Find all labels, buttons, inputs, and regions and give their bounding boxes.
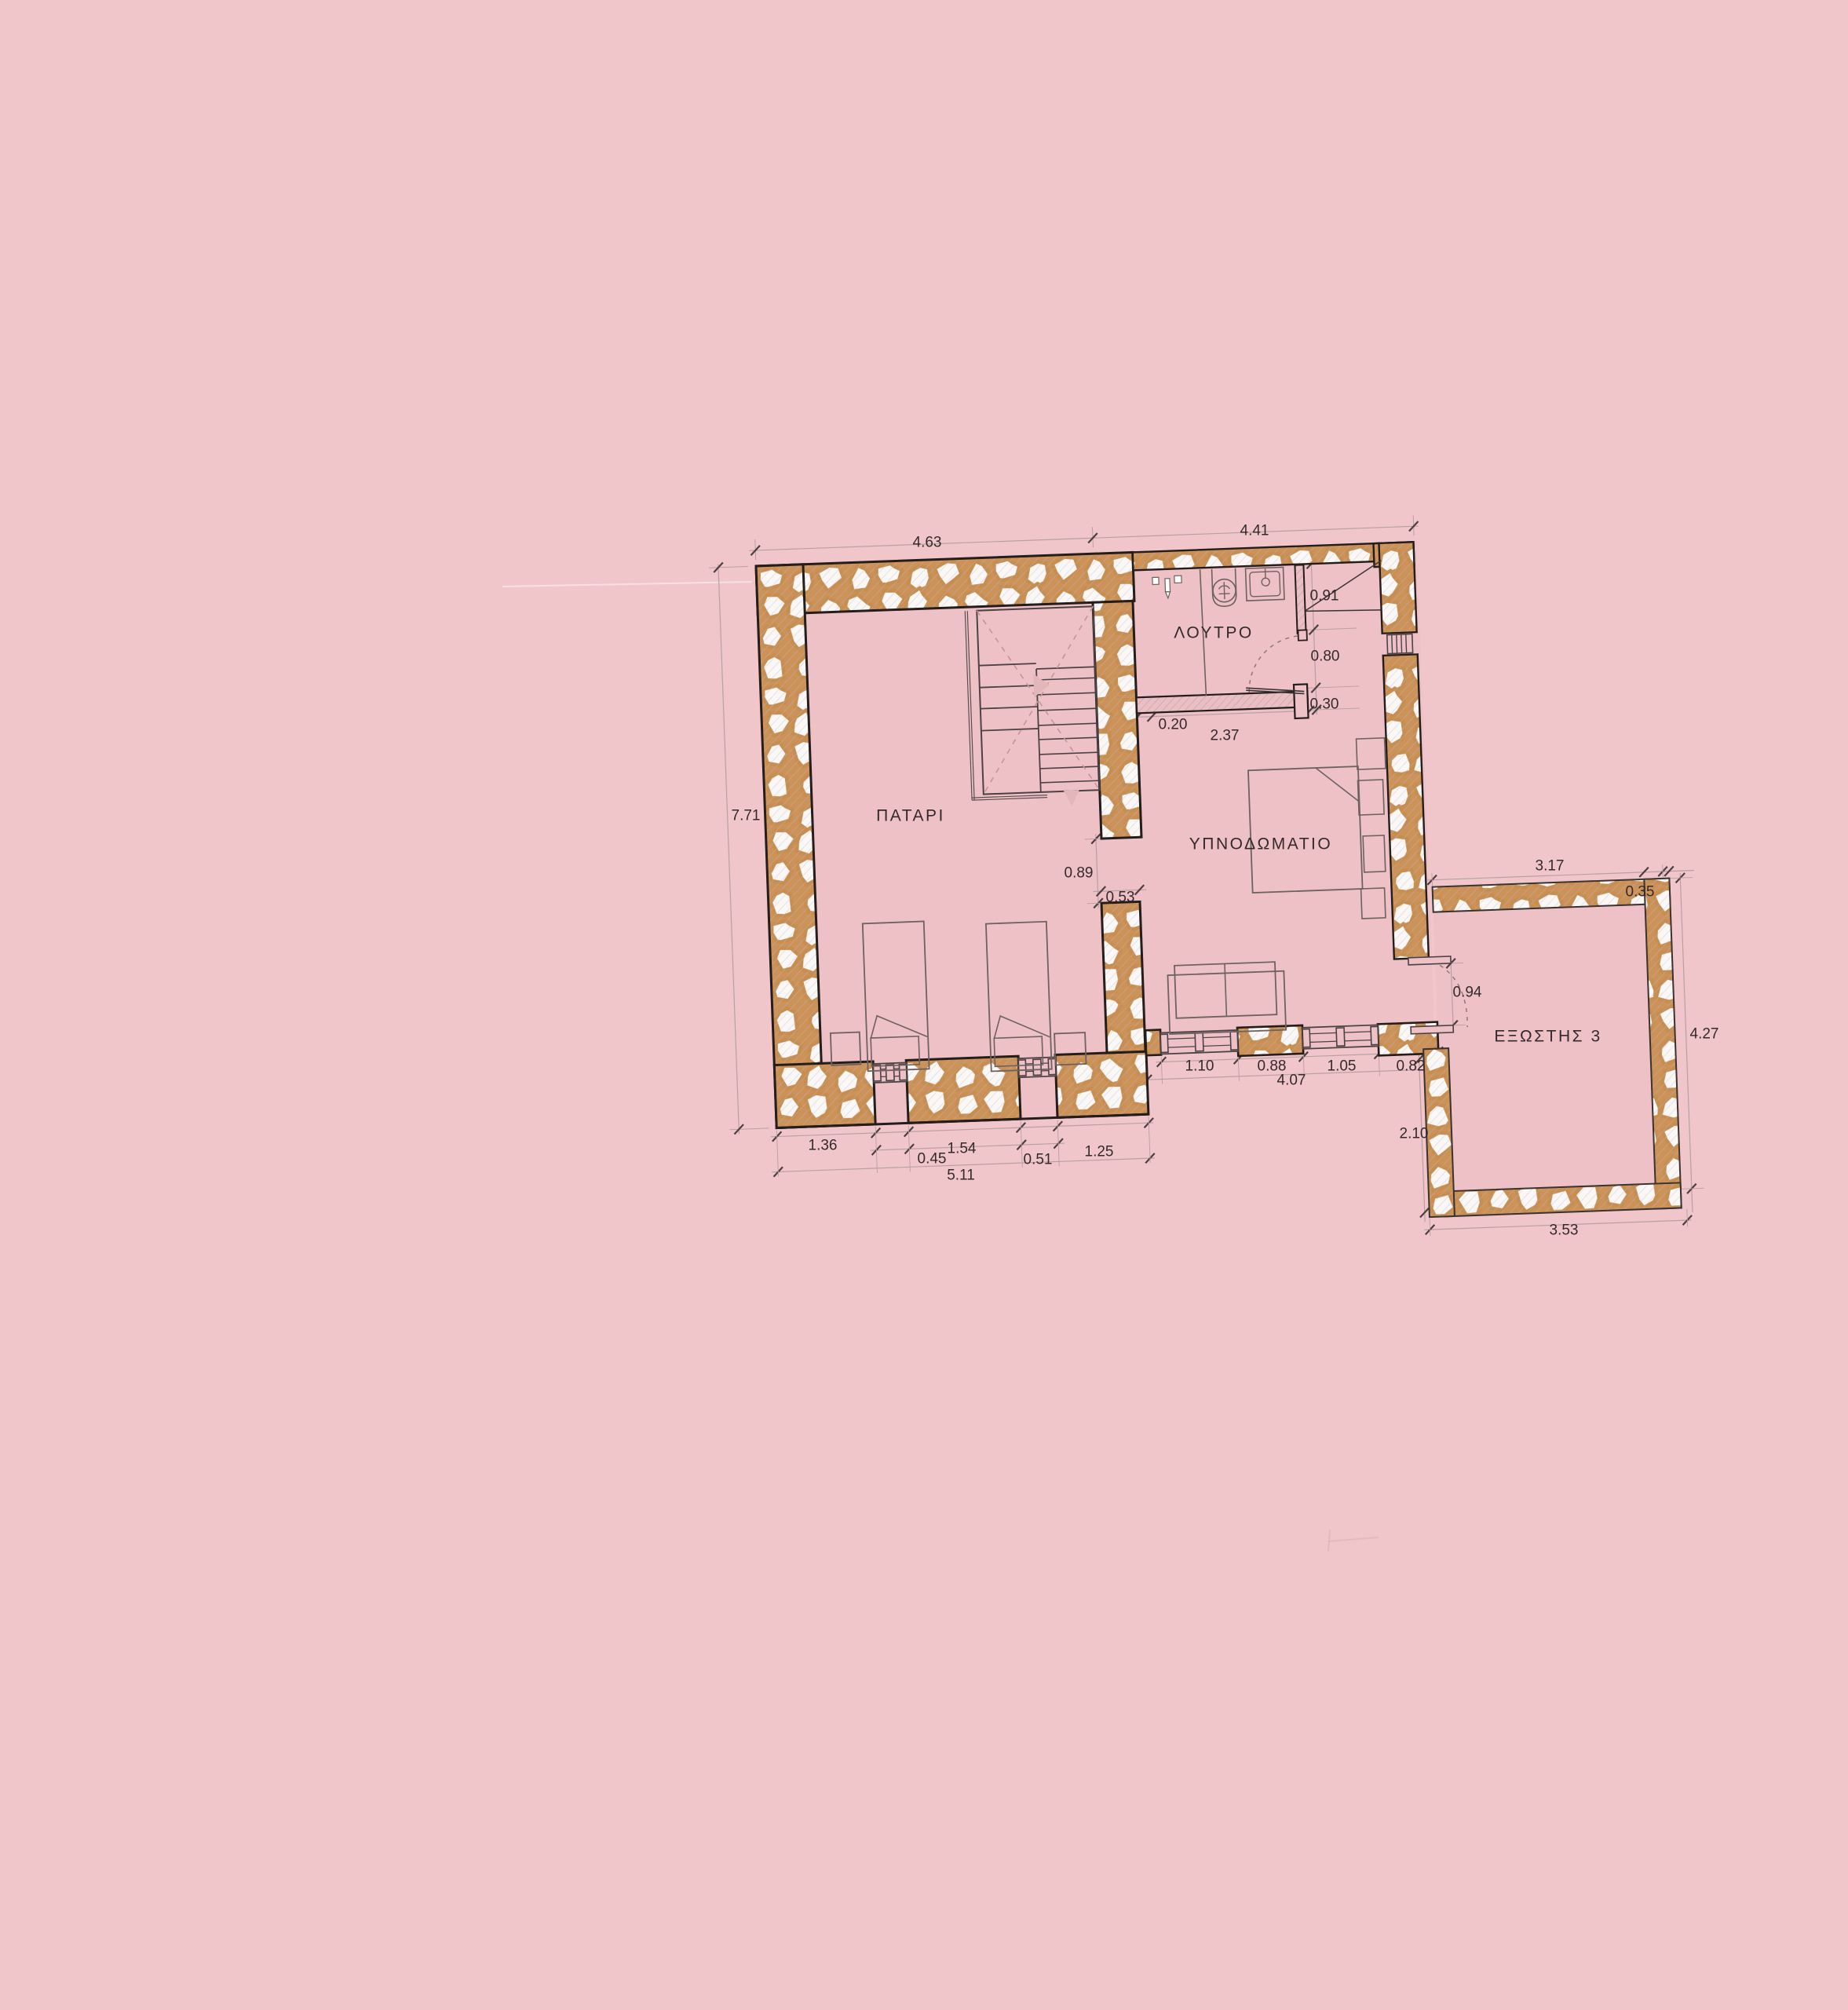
svg-text:0.89: 0.89 — [1065, 865, 1094, 882]
svg-text:5.11: 5.11 — [947, 1168, 975, 1184]
svg-text:ΛΟΥΤΡΟ: ΛΟΥΤΡΟ — [1174, 624, 1253, 642]
svg-text:ΠΑΤΑΡΙ: ΠΑΤΑΡΙ — [876, 807, 945, 825]
svg-text:0.35: 0.35 — [1626, 884, 1655, 901]
svg-text:3.53: 3.53 — [1550, 1222, 1579, 1239]
svg-text:4.41: 4.41 — [1240, 523, 1269, 539]
svg-text:1.54: 1.54 — [948, 1141, 977, 1157]
svg-text:0.80: 0.80 — [1311, 649, 1340, 665]
svg-text:0.82: 0.82 — [1397, 1058, 1426, 1075]
svg-text:4.07: 4.07 — [1277, 1073, 1306, 1089]
svg-text:2.37: 2.37 — [1211, 728, 1240, 744]
svg-text:1.05: 1.05 — [1328, 1058, 1357, 1075]
svg-text:4.27: 4.27 — [1690, 1026, 1719, 1043]
svg-text:1.10: 1.10 — [1185, 1058, 1214, 1075]
svg-text:1.25: 1.25 — [1085, 1144, 1114, 1160]
svg-text:1.36: 1.36 — [809, 1138, 838, 1154]
svg-text:0.91: 0.91 — [1310, 588, 1339, 605]
svg-text:0.20: 0.20 — [1159, 717, 1188, 733]
svg-text:7.71: 7.71 — [732, 808, 761, 824]
svg-text:ΕΞΩΣΤΗΣ 3: ΕΞΩΣΤΗΣ 3 — [1494, 1028, 1601, 1046]
svg-text:3.17: 3.17 — [1536, 858, 1565, 875]
svg-text:4.63: 4.63 — [913, 535, 942, 551]
svg-text:2.10: 2.10 — [1400, 1126, 1429, 1142]
svg-text:0.94: 0.94 — [1453, 985, 1482, 1001]
svg-text:0.30: 0.30 — [1310, 696, 1339, 713]
svg-text:0.45: 0.45 — [918, 1151, 947, 1168]
svg-text:0.53: 0.53 — [1106, 890, 1135, 906]
svg-text:ΥΠΝΟΔΩΜΑΤΙΟ: ΥΠΝΟΔΩΜΑΤΙΟ — [1189, 835, 1332, 853]
svg-text:0.51: 0.51 — [1024, 1152, 1053, 1168]
